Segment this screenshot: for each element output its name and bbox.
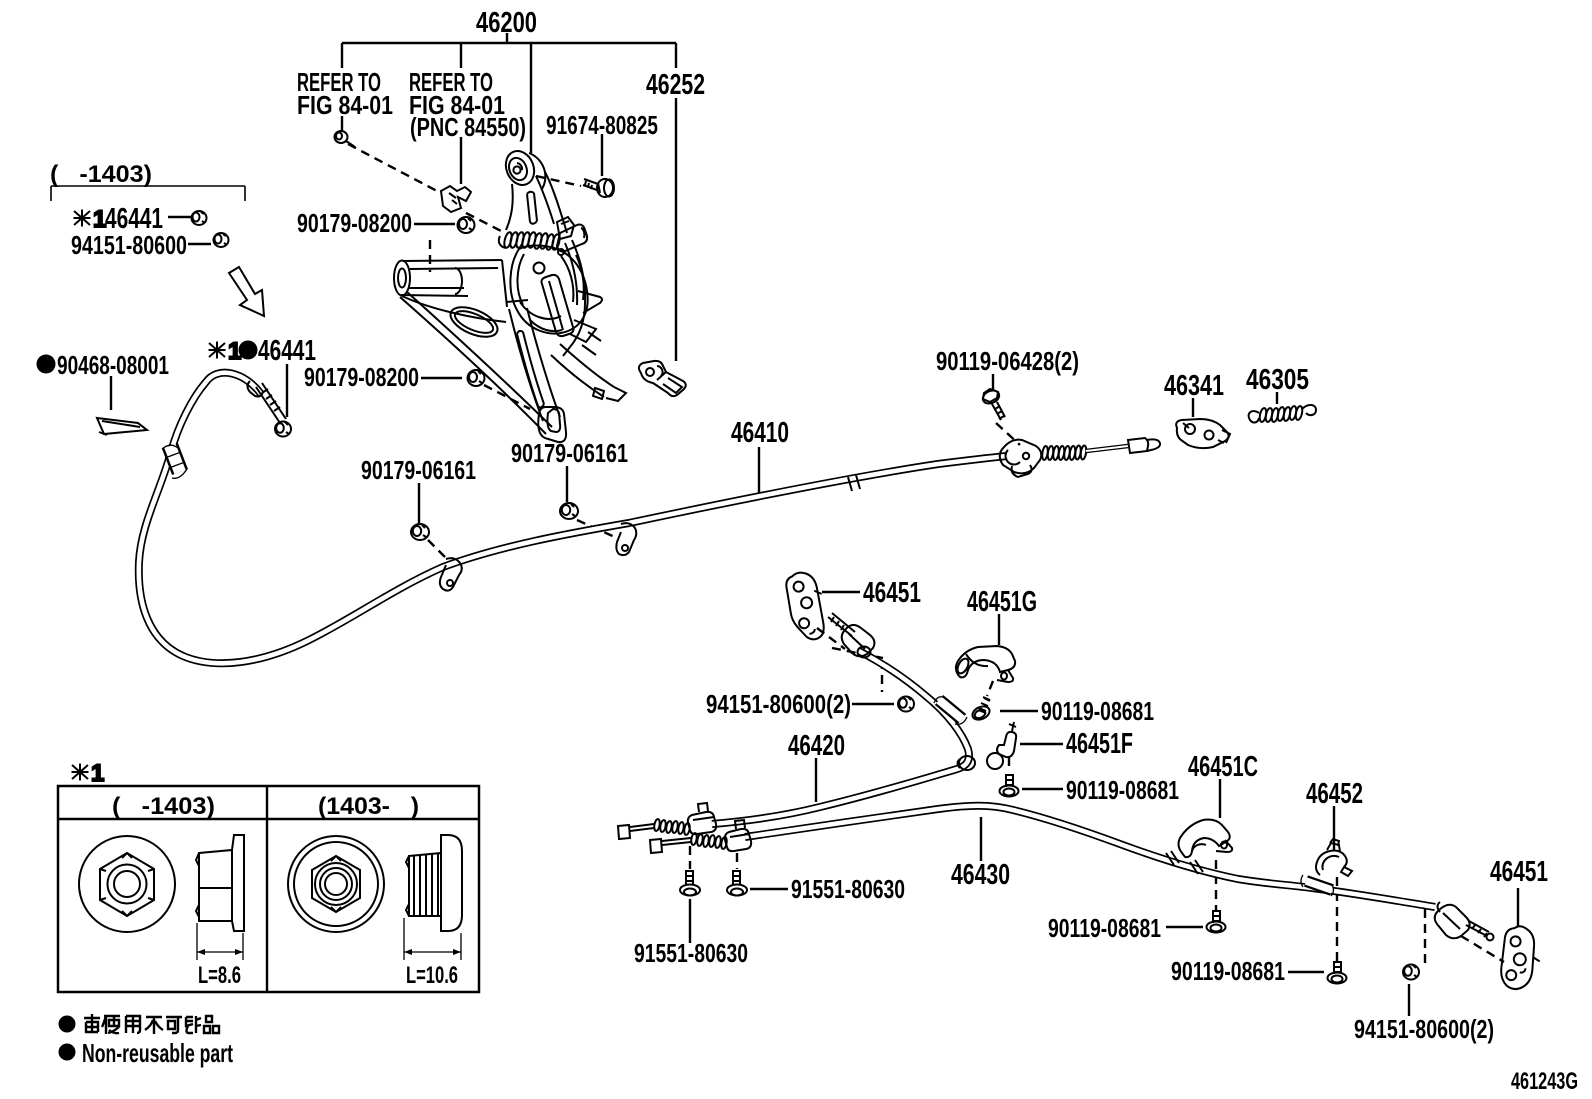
svg-text:90119-08681: 90119-08681 — [1171, 956, 1285, 986]
svg-text:91551-80630: 91551-80630 — [634, 938, 748, 968]
svg-text:( -1403): ( -1403) — [112, 793, 215, 820]
svg-text:90179-08200: 90179-08200 — [297, 208, 412, 238]
svg-text:91551-80630: 91551-80630 — [791, 874, 905, 904]
svg-text:46451F: 46451F — [1066, 728, 1133, 760]
svg-text:46451G: 46451G — [967, 586, 1037, 618]
svg-text:90179-08200: 90179-08200 — [304, 362, 419, 392]
svg-text:1: 1 — [91, 760, 104, 787]
svg-text:90119-08681: 90119-08681 — [1041, 696, 1154, 726]
svg-text:46420: 46420 — [788, 730, 845, 762]
svg-text:46410: 46410 — [731, 417, 789, 449]
svg-text:L=10.6: L=10.6 — [406, 962, 458, 989]
svg-text:90119-08681: 90119-08681 — [1048, 913, 1161, 943]
svg-text:FIG 84-01: FIG 84-01 — [297, 90, 393, 120]
svg-text:1: 1 — [228, 338, 241, 365]
svg-text:90179-06161: 90179-06161 — [361, 455, 476, 485]
svg-text:(PNC 84550): (PNC 84550) — [410, 112, 526, 142]
svg-text:46451: 46451 — [1490, 856, 1548, 888]
svg-text:94151-80600: 94151-80600 — [71, 230, 187, 260]
svg-text:46452: 46452 — [1306, 778, 1363, 810]
svg-text:( -1403): ( -1403) — [50, 161, 152, 188]
svg-text:46252: 46252 — [646, 69, 705, 101]
svg-text:46451: 46451 — [863, 577, 921, 609]
svg-text:90468-08001: 90468-08001 — [57, 350, 169, 380]
svg-text:90179-06161: 90179-06161 — [511, 438, 628, 468]
svg-text:46200: 46200 — [476, 7, 537, 39]
svg-text:1: 1 — [93, 206, 106, 233]
svg-text:94151-80600(2): 94151-80600(2) — [1354, 1014, 1494, 1044]
svg-text:(1403- ): (1403- ) — [318, 793, 419, 820]
svg-text:46341: 46341 — [1164, 370, 1224, 402]
svg-text:90119-06428(2): 90119-06428(2) — [936, 346, 1079, 376]
svg-text:L=8.6: L=8.6 — [198, 962, 241, 989]
svg-text:46451C: 46451C — [1188, 751, 1258, 783]
svg-text:46305: 46305 — [1246, 364, 1309, 396]
svg-text:Non-reusable part: Non-reusable part — [82, 1038, 233, 1068]
svg-text:461243G: 461243G — [1511, 1068, 1578, 1095]
svg-text:90119-08681: 90119-08681 — [1066, 775, 1179, 805]
svg-text:94151-80600(2): 94151-80600(2) — [706, 689, 851, 719]
svg-text:46430: 46430 — [951, 859, 1010, 891]
svg-text:91674-80825: 91674-80825 — [546, 110, 658, 140]
